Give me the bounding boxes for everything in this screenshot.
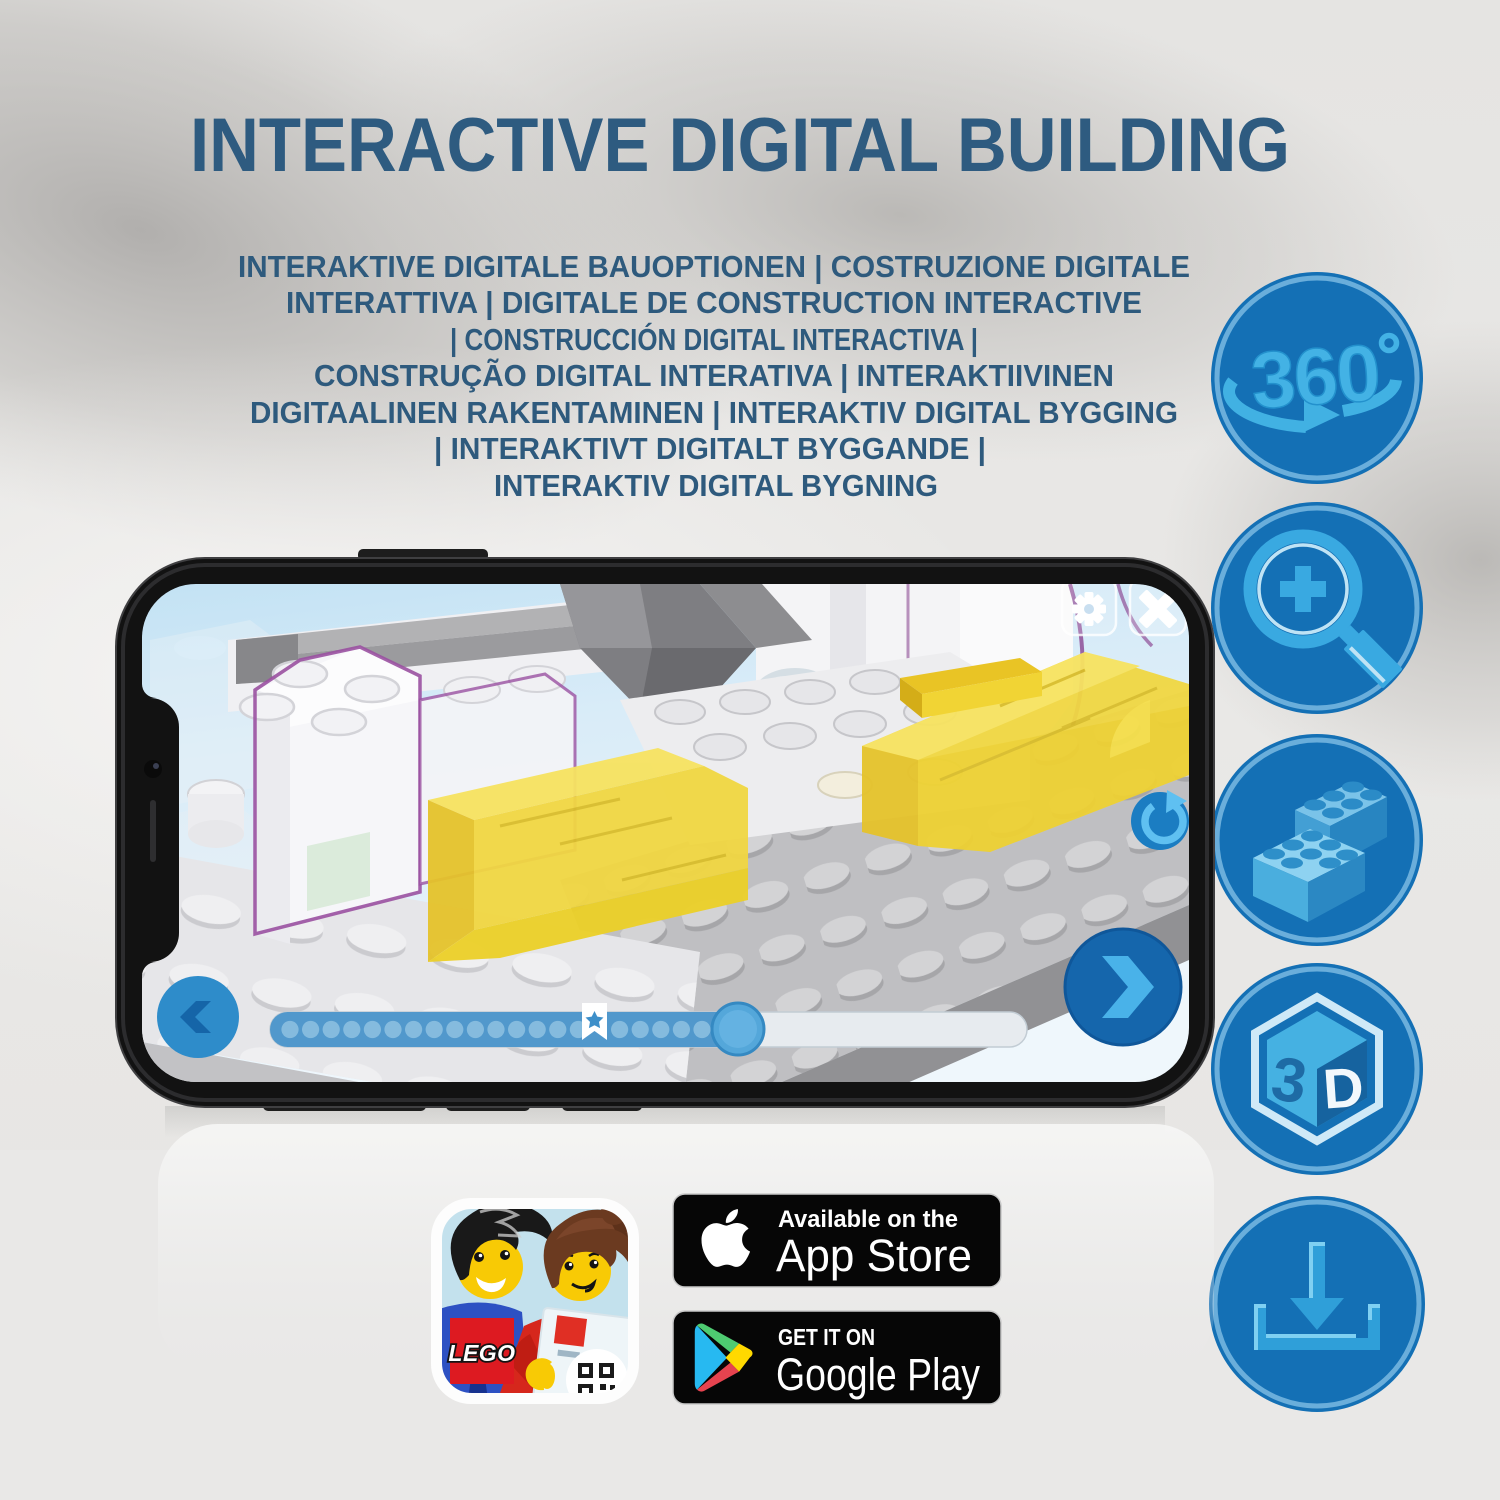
svg-text:| CONSTRUCCIÓN DIGITAL INTERAC: | CONSTRUCCIÓN DIGITAL INTERACTIVA |: [450, 321, 978, 357]
svg-text:App Store: App Store: [776, 1230, 972, 1281]
svg-text:LEGO: LEGO: [448, 1340, 515, 1366]
svg-text:INTERAKTIV DIGITAL BYGNING: INTERAKTIV DIGITAL BYGNING: [494, 468, 938, 503]
svg-text:INTERACTIVE DIGITAL BUILDING: INTERACTIVE DIGITAL BUILDING: [190, 103, 1290, 188]
svg-text:D: D: [1321, 1055, 1366, 1121]
svg-text:INTERAKTIVE DIGITALE BAUOPTION: INTERAKTIVE DIGITALE BAUOPTIONEN | COSTR…: [238, 249, 1190, 284]
svg-text:360: 360: [1248, 328, 1381, 426]
svg-text:Available on the: Available on the: [778, 1206, 958, 1233]
svg-text:DIGITAALINEN RAKENTAMINEN | IN: DIGITAALINEN RAKENTAMINEN | INTERAKTIV D…: [250, 395, 1178, 430]
svg-text:CONSTRUÇÃO DIGITAL INTERATIVA: CONSTRUÇÃO DIGITAL INTERATIVA | INTERAKT…: [314, 358, 1114, 393]
svg-text:| INTERAKTIVT DIGITALT BYGGAND: | INTERAKTIVT DIGITALT BYGGANDE |: [434, 431, 986, 466]
svg-text:Google Play: Google Play: [776, 1349, 980, 1400]
svg-text:GET IT ON: GET IT ON: [778, 1324, 875, 1350]
svg-text:INTERATTIVA | DIGITALE DE CONS: INTERATTIVA | DIGITALE DE CONSTRUCTION I…: [286, 285, 1142, 320]
